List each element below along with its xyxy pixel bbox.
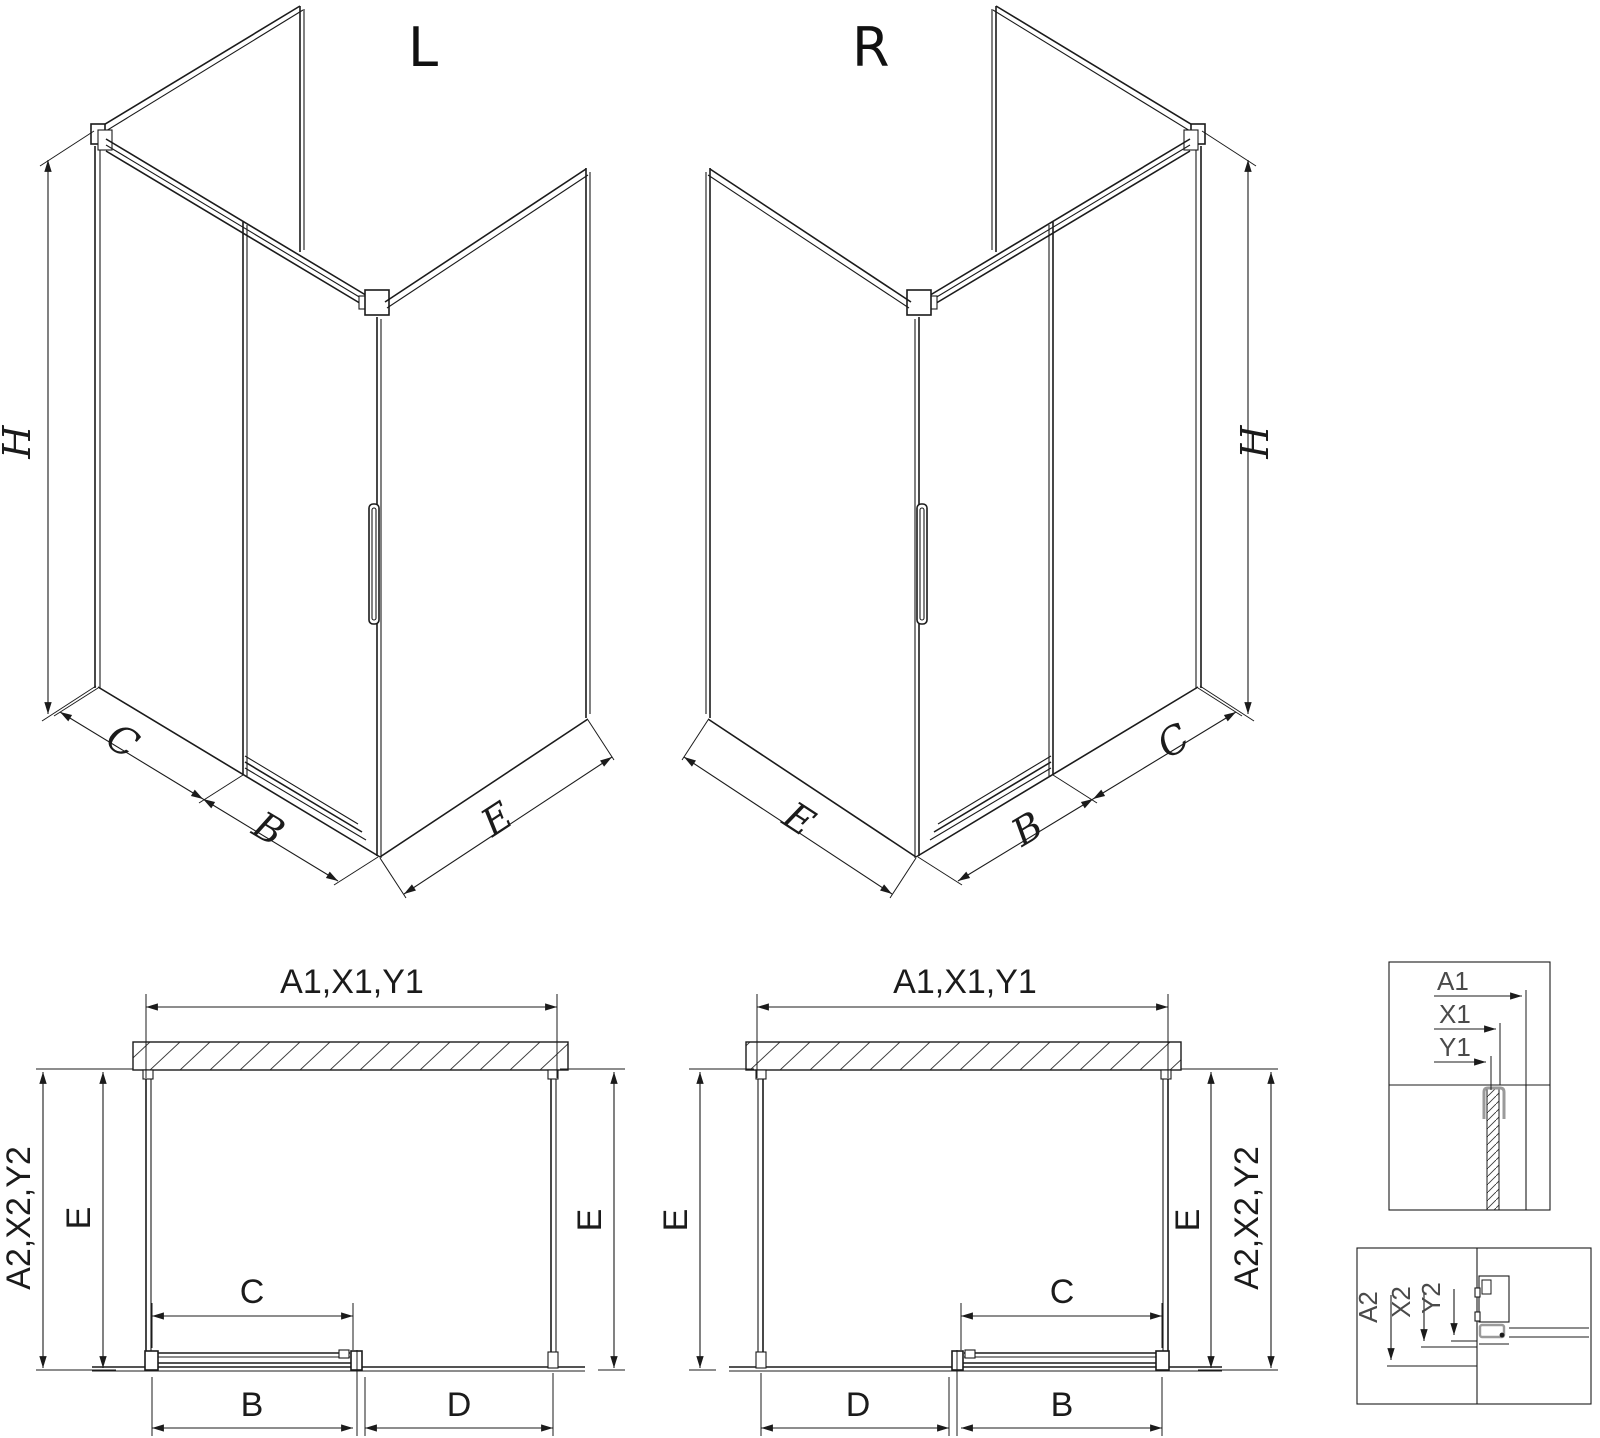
plan-right-dim-side-inner: E bbox=[1169, 1209, 1207, 1232]
detail-floor-label-a2: A2 bbox=[1353, 1291, 1383, 1323]
plan-left-dim-side-inner: E bbox=[60, 1207, 98, 1230]
detail-floor-label-x2: X2 bbox=[1386, 1286, 1416, 1318]
wall-section-hatch-left bbox=[133, 1042, 568, 1070]
plan-left-dim-side-outer: A2,X2,Y2 bbox=[0, 1146, 38, 1290]
plan-right-dim-fixed: D bbox=[846, 1386, 871, 1424]
plan-right-dim-top: A1,X1,Y1 bbox=[893, 963, 1037, 1001]
dim-label-door-left: B bbox=[245, 802, 292, 855]
dim-label-side-right: E bbox=[775, 793, 823, 846]
dim-label-height-right: H bbox=[1233, 425, 1277, 460]
plan-left-dim-door-opening: C bbox=[240, 1273, 265, 1311]
plan-right-dim-side-left: E bbox=[657, 1209, 695, 1232]
plan-left-dim-side-right: E bbox=[571, 1209, 609, 1232]
detail-floor-rail: A2 X2 Y2 bbox=[1353, 1248, 1591, 1404]
detail-wall-glass-section bbox=[1487, 1088, 1499, 1210]
detail-wall-fixing: A1 X1 Y1 bbox=[1389, 962, 1550, 1210]
detail-floor-rail-section bbox=[1475, 1276, 1589, 1344]
view-label-right: R bbox=[852, 16, 890, 79]
plan-left-dim-fixed: D bbox=[447, 1386, 472, 1424]
dim-label-height-left: H bbox=[0, 425, 39, 460]
plan-right-dim-door-rail: B bbox=[1051, 1386, 1074, 1424]
iso-view-right: R H E B C bbox=[682, 6, 1277, 898]
dim-label-side-left: E bbox=[472, 793, 520, 846]
plan-right-dim-door-opening: C bbox=[1050, 1273, 1075, 1311]
plan-view-left: A1,X1,Y1 A2,X2,Y2 E E C B D bbox=[0, 963, 625, 1436]
plan-view-right: A1,X1,Y1 E E A2,X2,Y2 C D B bbox=[657, 963, 1278, 1436]
plan-left-dim-door-rail: B bbox=[241, 1386, 264, 1424]
plan-right-dim-side-outer: A2,X2,Y2 bbox=[1228, 1146, 1266, 1290]
shower-enclosure-technical-drawing: L H C B E R H E B C A1,X1,Y1 A2,X2,Y2 E … bbox=[0, 0, 1600, 1438]
view-label-left: L bbox=[408, 16, 438, 79]
plan-left-dim-top: A1,X1,Y1 bbox=[280, 963, 424, 1001]
dim-label-fixed-right: C bbox=[1150, 715, 1198, 768]
detail-wall-label-a1: A1 bbox=[1437, 966, 1469, 996]
dim-label-door-right: B bbox=[1003, 803, 1050, 856]
iso-view-left: L H C B E bbox=[0, 6, 614, 898]
detail-floor-label-y2: Y2 bbox=[1416, 1282, 1446, 1314]
iso-left-linework bbox=[40, 6, 614, 898]
detail-wall-label-x1: X1 bbox=[1439, 999, 1471, 1029]
detail-wall-label-y1: Y1 bbox=[1439, 1032, 1471, 1062]
detail-floor-roller-bolt bbox=[1500, 1333, 1505, 1338]
detail-floor-frame bbox=[1357, 1248, 1591, 1404]
dim-label-fixed-left: C bbox=[99, 715, 147, 768]
wall-section-hatch-right bbox=[746, 1042, 1181, 1070]
